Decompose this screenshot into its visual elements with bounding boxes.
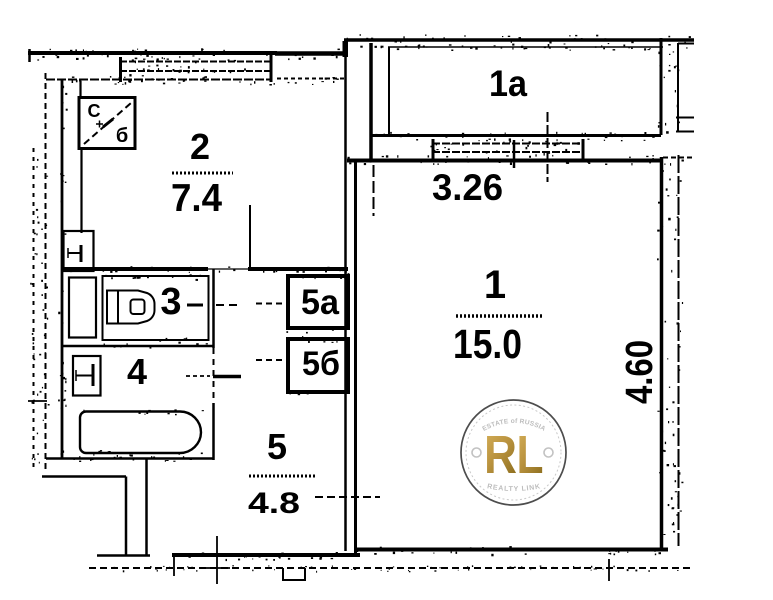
svg-text:5: 5: [267, 426, 287, 467]
svg-text:L: L: [517, 425, 544, 485]
svg-text:4.8: 4.8: [248, 487, 300, 520]
svg-text:5а: 5а: [301, 283, 340, 322]
svg-text:1а: 1а: [489, 63, 527, 104]
svg-text:4: 4: [127, 351, 147, 392]
svg-text:4.60: 4.60: [619, 340, 661, 404]
svg-text:15.0: 15.0: [453, 321, 522, 367]
svg-text:3: 3: [160, 281, 181, 323]
svg-text:3.26: 3.26: [432, 167, 503, 208]
svg-text:C: C: [88, 101, 101, 121]
svg-text:2: 2: [190, 126, 210, 167]
svg-text:1: 1: [484, 263, 506, 307]
svg-text:R: R: [484, 425, 517, 485]
svg-text:б: б: [116, 125, 128, 147]
svg-text:7.4: 7.4: [171, 177, 222, 220]
svg-text:5б: 5б: [302, 345, 340, 383]
